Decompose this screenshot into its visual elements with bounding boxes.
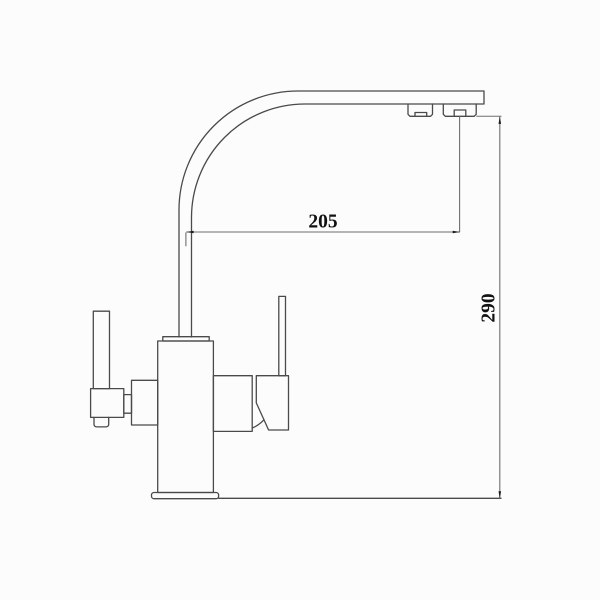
svg-text:205: 205	[308, 212, 338, 233]
svg-text:290: 290	[479, 293, 500, 322]
